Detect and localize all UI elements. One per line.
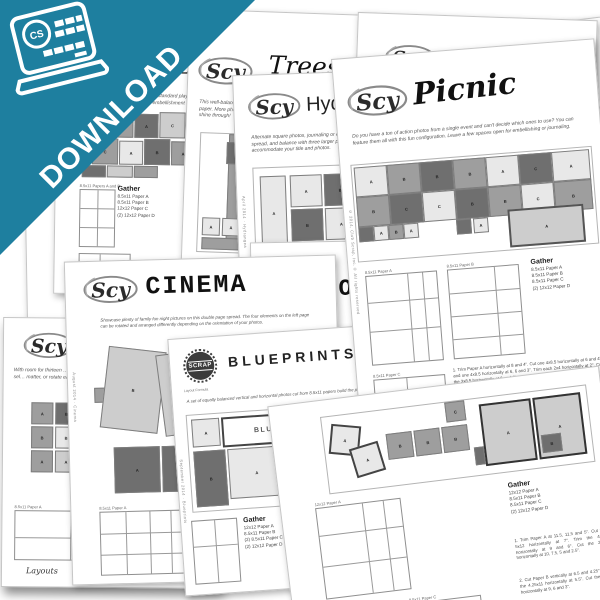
diagram-label: 8.5x11 Paper A <box>15 504 42 509</box>
cutting-diagram <box>447 264 526 359</box>
intro-text: Showcase plenty of family fun night pict… <box>100 313 310 330</box>
diagram-label: 8.5x11 Papers A and B <box>80 183 120 189</box>
cutting-diagram <box>99 509 191 575</box>
brand-script-logo-icon <box>246 88 303 125</box>
page-chain: A A B B B A A B C 12x12 Paper A Gather 1… <box>267 366 600 600</box>
sideways-caption: August 2014 · Cinema <box>72 372 78 422</box>
cutting-diagram <box>191 518 241 585</box>
intro-text: Do you have a ton of action photos from … <box>352 115 584 146</box>
diagram-label: 8.5x11 Paper C <box>409 594 437 600</box>
diagram-label: 8.5x11 Paper A <box>99 505 126 511</box>
badge-subtitle: Layout Formula <box>184 387 209 393</box>
brand-script-logo-icon <box>344 78 411 123</box>
layout-preview: A B B B A C A B C C B B C B A B A A A <box>350 146 599 263</box>
product-image: Layouts DEAL … matches the standard play… <box>0 0 600 600</box>
cs-monogram: CS <box>29 28 45 42</box>
gather-list: Gather 12x12 Paper A 8.5x11 Paper B (2) … <box>243 515 284 550</box>
cutting-diagram <box>315 498 412 600</box>
instruction-step: 2. Cut Paper B vertically at 6.5 and 4.2… <box>519 567 600 595</box>
cutting-diagram <box>79 189 116 247</box>
sideways-caption: April 2014 · Hydrangea <box>241 196 248 248</box>
cutting-diagram <box>365 270 444 365</box>
gather-list: Gather 8.5x11 Paper A 8.5x11 Paper B 12x… <box>117 186 155 219</box>
gather-list: Gather 8.5x11 Paper A 8.5x11 Paper B 8.5… <box>530 256 570 292</box>
layouts-signature: Layouts <box>26 566 58 575</box>
page-title: CINEMA <box>145 270 248 302</box>
instruction-step: 1. Trim Paper A at 11.5, 11.5 and 5". Cu… <box>514 527 600 561</box>
layout-preview: A A B B B A A B C <box>320 384 596 494</box>
gather-list: Gather 12x12 Paper A 8.5x11 Paper B 8.5x… <box>507 478 548 515</box>
page-title: BLUEPRINTS <box>227 345 357 370</box>
scrap-badge-icon: SCRAP <box>185 351 215 381</box>
brand-script-logo-icon <box>81 271 140 309</box>
page-title: Picnic <box>411 66 518 113</box>
sideways-caption: September 2014 · Blueprints <box>179 459 188 524</box>
